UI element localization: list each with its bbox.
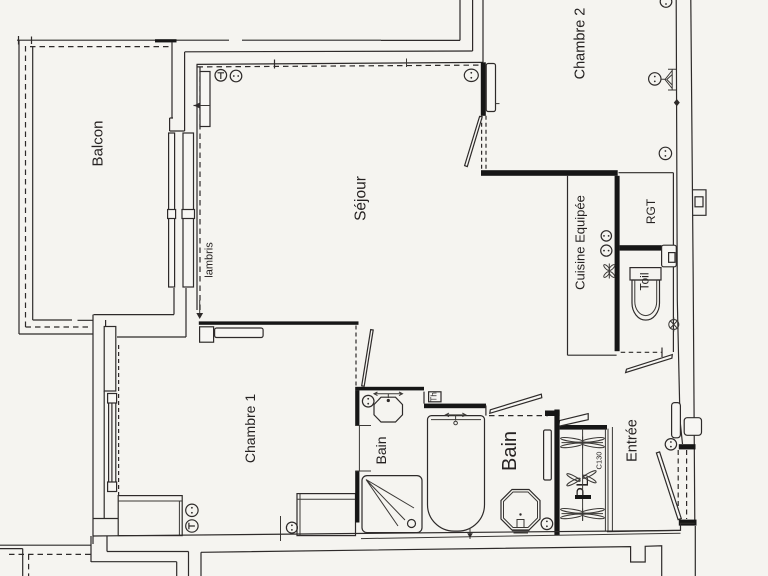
svg-text:Bain: Bain	[373, 436, 389, 464]
svg-text:Cuisine Equipée: Cuisine Equipée	[573, 195, 588, 290]
svg-text:RGT: RGT	[644, 198, 658, 224]
svg-text:Chambre 1: Chambre 1	[242, 394, 258, 463]
svg-text:Entrée: Entrée	[625, 419, 641, 462]
svg-text:Th: Th	[430, 392, 439, 401]
svg-text:C130: C130	[595, 452, 604, 470]
svg-text:Séjour: Séjour	[353, 176, 370, 221]
svg-text:Toil: Toil	[638, 272, 652, 290]
svg-text:Chambre 2: Chambre 2	[573, 8, 589, 80]
svg-text:Balcon: Balcon	[90, 121, 107, 167]
svg-text:Bain: Bain	[499, 431, 521, 471]
svg-text:lambris: lambris	[204, 242, 216, 278]
